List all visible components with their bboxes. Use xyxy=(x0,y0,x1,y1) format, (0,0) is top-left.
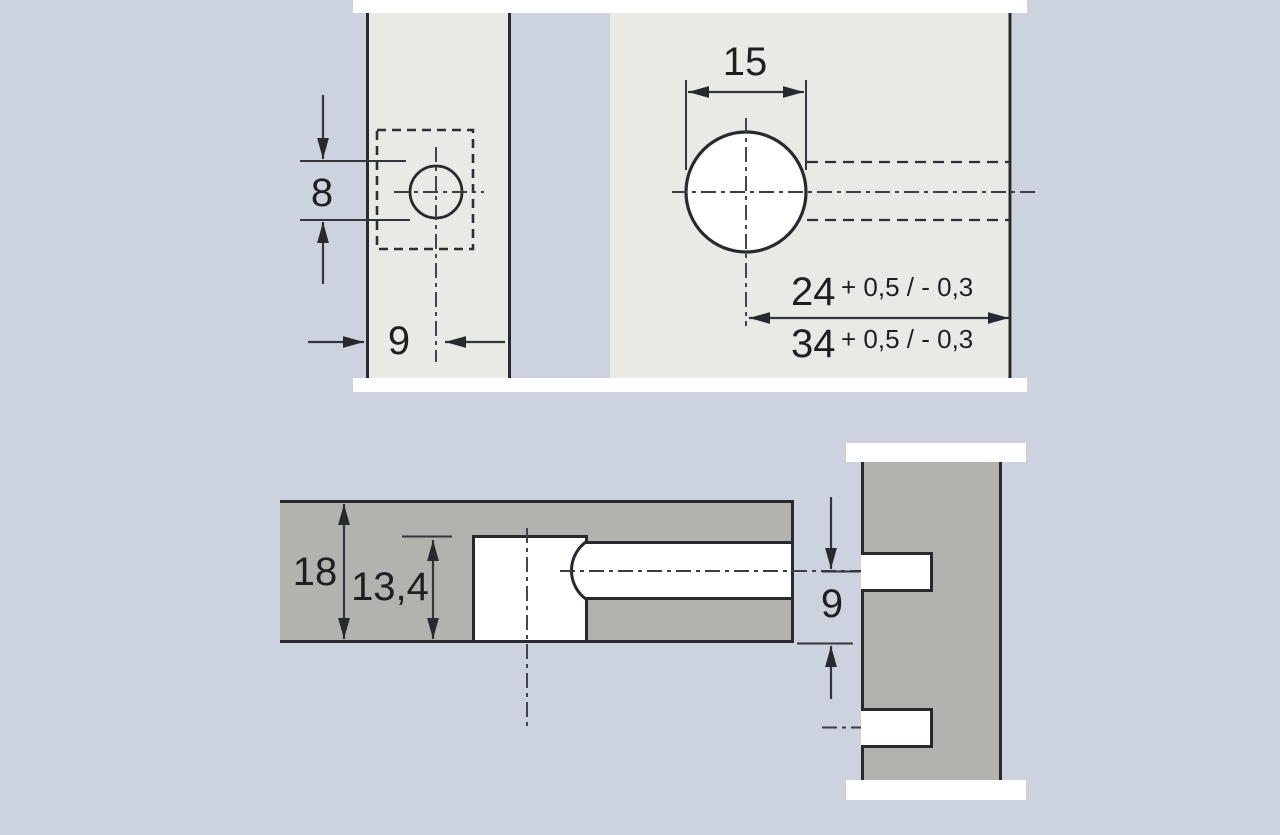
dim34-label: 34 xyxy=(791,322,836,366)
vertical-board-break-top xyxy=(846,443,1026,462)
top-view: 8 9 15 24 + 0,5 / - 0,3 34 + 0,5 / - 0,3 xyxy=(300,0,1040,392)
dim24-label: 24 xyxy=(791,270,836,314)
technical-drawing: 8 9 15 24 + 0,5 / - 0,3 34 + 0,5 / - 0,3 xyxy=(0,0,1280,835)
panel-break-strip-top xyxy=(353,0,1027,13)
dim8-label: 8 xyxy=(311,171,333,215)
dim18-label: 18 xyxy=(293,550,338,594)
panel-break-strip-bottom xyxy=(353,378,1027,392)
dowel-hole-2 xyxy=(861,708,933,748)
dim15-label: 15 xyxy=(723,40,768,84)
dim9s-label: 9 xyxy=(821,582,843,626)
dowel-hole-1 xyxy=(861,552,933,592)
dim134-label: 13,4 xyxy=(351,565,429,609)
vertical-board-break-bottom xyxy=(846,780,1026,800)
hole-cavity-15mm xyxy=(472,535,587,641)
dim9-label: 9 xyxy=(388,319,410,363)
technical-drawing-page: 8 9 15 24 + 0,5 / - 0,3 34 + 0,5 / - 0,3 xyxy=(0,0,1280,835)
drill-channel-8mm xyxy=(580,541,792,599)
dim34-tolerance: + 0,5 / - 0,3 xyxy=(841,324,973,354)
dim24-tolerance: + 0,5 / - 0,3 xyxy=(841,272,973,302)
